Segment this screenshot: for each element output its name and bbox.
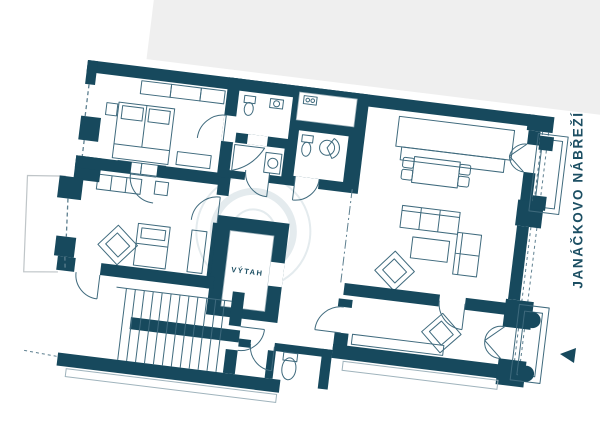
armchair [422, 313, 462, 353]
bedroom-2-furniture [87, 174, 212, 275]
neighbor-building-band [147, 0, 600, 127]
sofa-2seat [453, 232, 482, 277]
floor-plan: VÝTAH JANÁČKOVO NÁBŘEŽÍ [0, 0, 600, 434]
entrance-arrow-icon [560, 348, 576, 363]
single-bed [133, 223, 170, 269]
street-name-label: JANÁČKOVO NÁBŘEŽÍ [571, 111, 586, 288]
french-door [508, 142, 527, 172]
french-door [483, 324, 505, 358]
sofa [96, 174, 142, 194]
armchair [98, 225, 138, 265]
double-bed [112, 102, 174, 164]
living-room-furniture [373, 116, 515, 303]
nightstand [105, 103, 117, 116]
kitchen-island [394, 116, 514, 173]
open-boundary-line [341, 189, 353, 284]
coffee-table [410, 237, 449, 262]
dining-table [401, 155, 472, 189]
side-table [154, 181, 168, 195]
toilet-icon [281, 352, 298, 381]
floor-plan-drawing: VÝTAH [0, 0, 600, 434]
armchair [375, 251, 415, 291]
sofa-3seat [400, 205, 460, 234]
dresser [176, 152, 211, 169]
bathroom-1 [234, 91, 293, 139]
